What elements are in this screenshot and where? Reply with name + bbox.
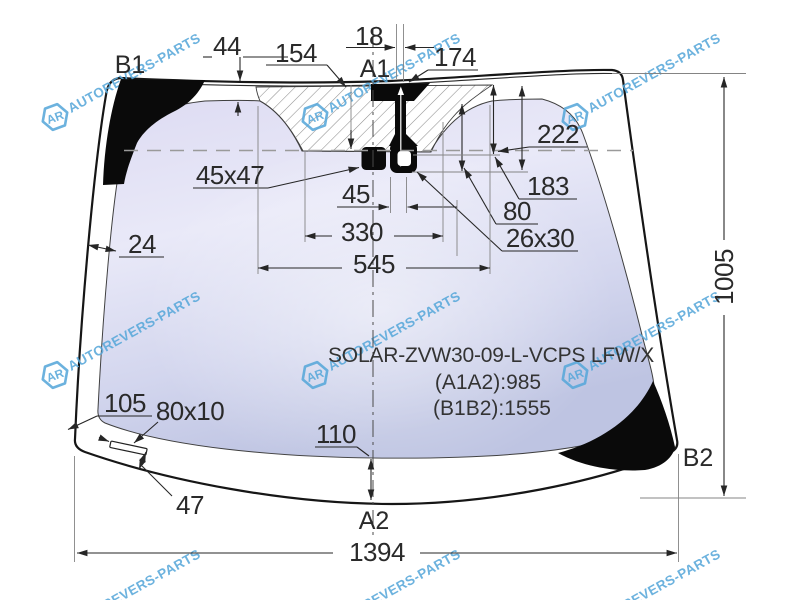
dim-1394-label: 1394	[349, 537, 405, 567]
dim-174-label: 174	[434, 42, 476, 72]
diagram-canvas: AR AUTOREVERS-PARTS AR AUTOREVERS-PARTS …	[0, 0, 799, 600]
dim-45-label: 45	[342, 179, 370, 209]
ar-logo-text: AR	[45, 108, 66, 127]
watermark-tile: AR AUTOREVERS-PARTS	[559, 546, 723, 600]
point-b2-label: B2	[683, 444, 714, 472]
watermark-text: AUTOREVERS-PARTS	[585, 546, 723, 600]
dim-26x30-label: 26x30	[506, 223, 574, 253]
dim-44-label: 44	[213, 31, 241, 61]
point-a1-label: A1	[360, 55, 391, 83]
part-a1a2-length: (A1A2):985	[435, 371, 541, 394]
dim-1005-label: 1005	[709, 249, 739, 305]
point-a2-label: A2	[359, 507, 390, 535]
windshield-diagram: AR AUTOREVERS-PARTS AR AUTOREVERS-PARTS …	[0, 0, 799, 600]
dim-222-label: 222	[537, 119, 579, 149]
ar-logo-text: AR	[45, 366, 66, 385]
dim-105-label: 105	[104, 388, 146, 418]
dim-154-label: 154	[275, 38, 317, 68]
point-b1-label: B1	[115, 51, 146, 79]
dim-330-label: 330	[341, 217, 383, 247]
dim-183-label: 183	[527, 171, 569, 201]
dim-24-label: 24	[128, 229, 156, 259]
dim-110-label: 110	[316, 419, 356, 449]
part-code: SOLAR-ZVW30-09-L-VCPS LFW/X	[328, 344, 654, 367]
dim-80x10-label: 80x10	[156, 396, 224, 426]
dim-80-label: 80	[503, 196, 531, 226]
watermark-tile: AR AUTOREVERS-PARTS	[39, 546, 203, 600]
dim-45x47-label: 45x47	[196, 160, 264, 190]
dim-18-label: 18	[355, 21, 383, 51]
part-b1b2-length: (B1B2):1555	[433, 397, 551, 420]
watermark-text: AUTOREVERS-PARTS	[65, 546, 203, 600]
dim-545-label: 545	[353, 249, 395, 279]
glass	[75, 70, 677, 504]
dim-47-label: 47	[176, 490, 204, 520]
